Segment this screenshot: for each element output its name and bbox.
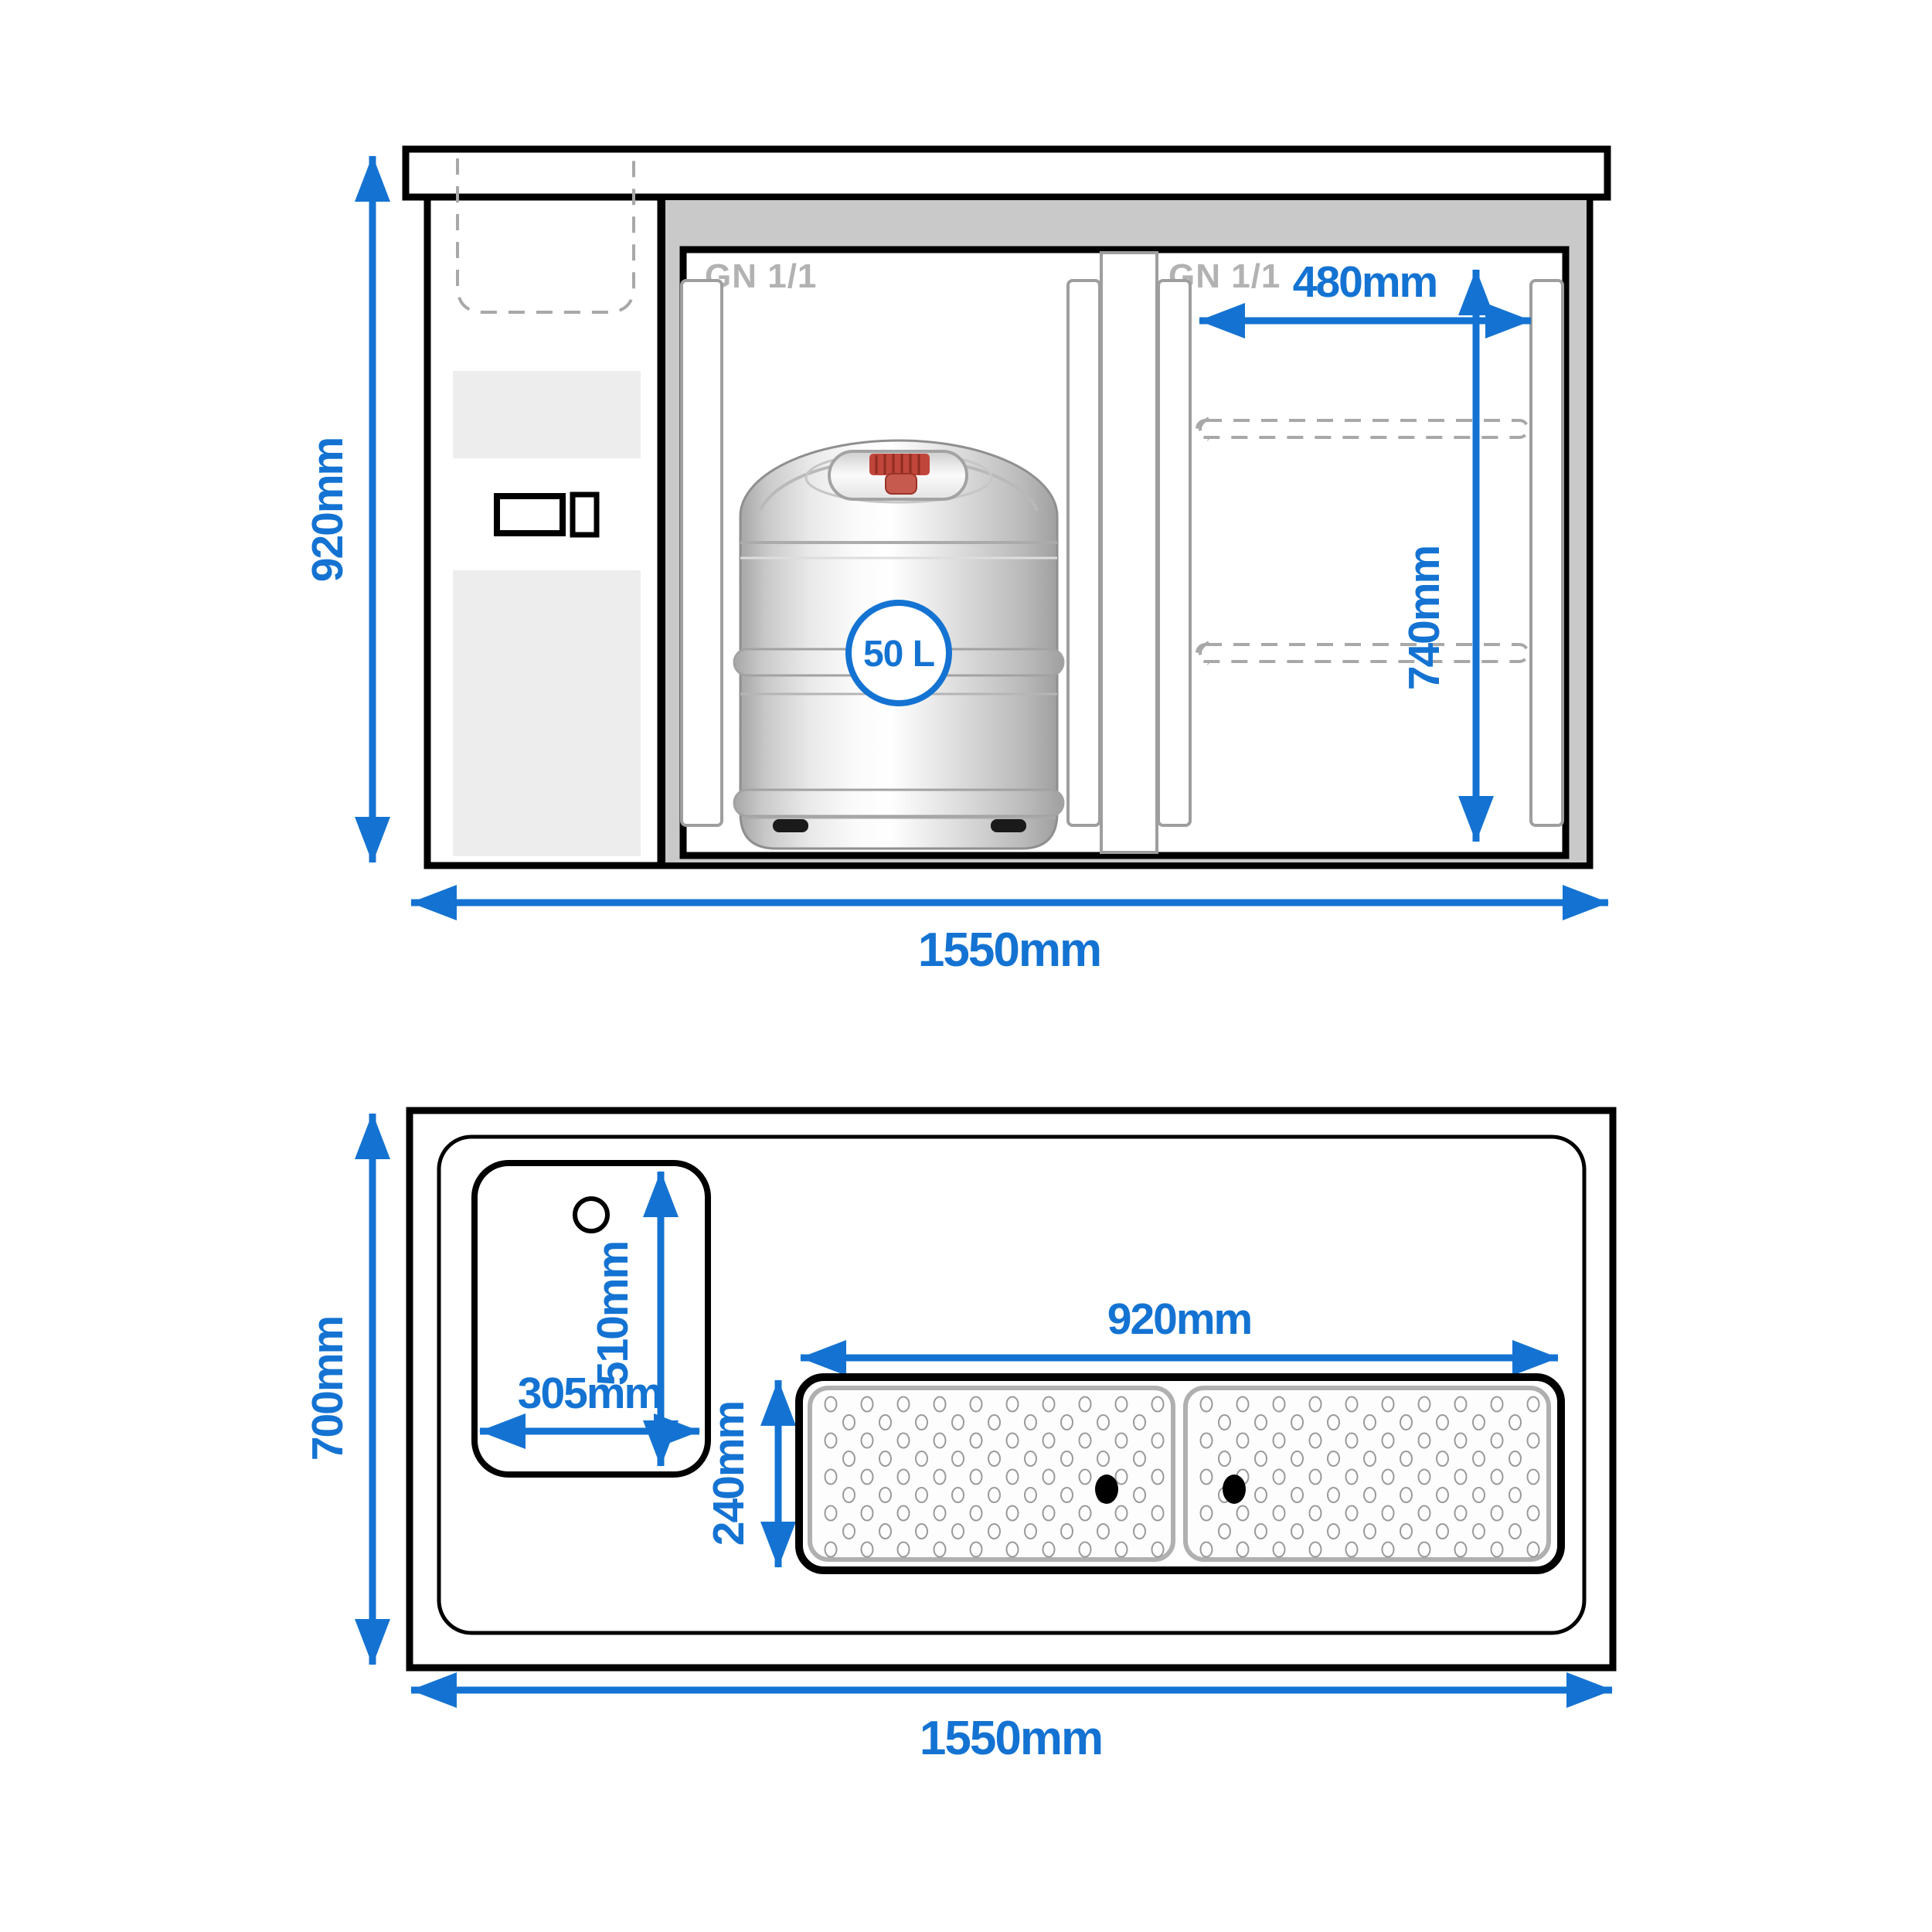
rail-left-door-right xyxy=(1068,281,1100,825)
dim-interior-height-label: 740mm xyxy=(1400,546,1449,690)
door-mullion xyxy=(1101,253,1157,852)
cooler-section: GN 1/1 GN 1/1 xyxy=(665,200,1587,862)
dim-front-height-label: 920mm xyxy=(303,438,352,582)
dim-front-height: 920mm xyxy=(303,156,372,862)
tap-fitting-large xyxy=(497,496,563,533)
dim-top-depth-label: 700mm xyxy=(303,1317,352,1461)
dim-front-width: 1550mm xyxy=(411,903,1608,977)
tap-fitting-small xyxy=(573,495,597,535)
dim-sink-length-label: 510mm xyxy=(588,1242,638,1386)
drip-tray-left xyxy=(810,1388,1173,1560)
sink-drain xyxy=(575,1199,607,1231)
keg-foot-cutout-right xyxy=(991,819,1026,832)
dim-trays-width-label: 920mm xyxy=(1107,1294,1251,1344)
keg-rib-lower xyxy=(734,790,1063,816)
dim-clear-width-label: 480mm xyxy=(1293,257,1437,307)
beer-keg: 50 L xyxy=(734,440,1063,849)
tray-drain-right xyxy=(1223,1475,1246,1504)
dim-sink-width-label: 305mm xyxy=(518,1369,662,1418)
drawing-canvas: 920mm GN 1/1 GN 1/1 xyxy=(0,0,1932,1932)
keg-foot-cutout-left xyxy=(773,819,808,832)
keg-capacity-label: 50 L xyxy=(863,634,934,675)
rail-left-wall xyxy=(682,281,722,825)
front-view: 920mm GN 1/1 GN 1/1 xyxy=(303,149,1608,977)
dim-top-width: 1550mm xyxy=(411,1690,1612,1765)
technical-drawing-page: 920mm GN 1/1 GN 1/1 xyxy=(0,0,1932,1932)
panel-lower xyxy=(453,570,641,856)
panel-upper xyxy=(453,371,641,458)
tray-drain-left xyxy=(1095,1475,1118,1504)
drip-tray-right xyxy=(1185,1388,1549,1560)
top-view: 700mm 510mm 305mm 920mm xyxy=(303,1111,1613,1765)
dim-top-depth: 700mm xyxy=(303,1114,372,1665)
worktop xyxy=(406,149,1607,197)
sink: 510mm 305mm xyxy=(474,1163,708,1475)
rail-right-door-left xyxy=(1158,281,1190,825)
rail-right-wall xyxy=(1531,281,1563,825)
dim-tray-depth-label: 240mm xyxy=(704,1402,753,1546)
dim-front-width-label: 1550mm xyxy=(918,923,1100,977)
dim-top-width-label: 1550mm xyxy=(920,1712,1102,1765)
